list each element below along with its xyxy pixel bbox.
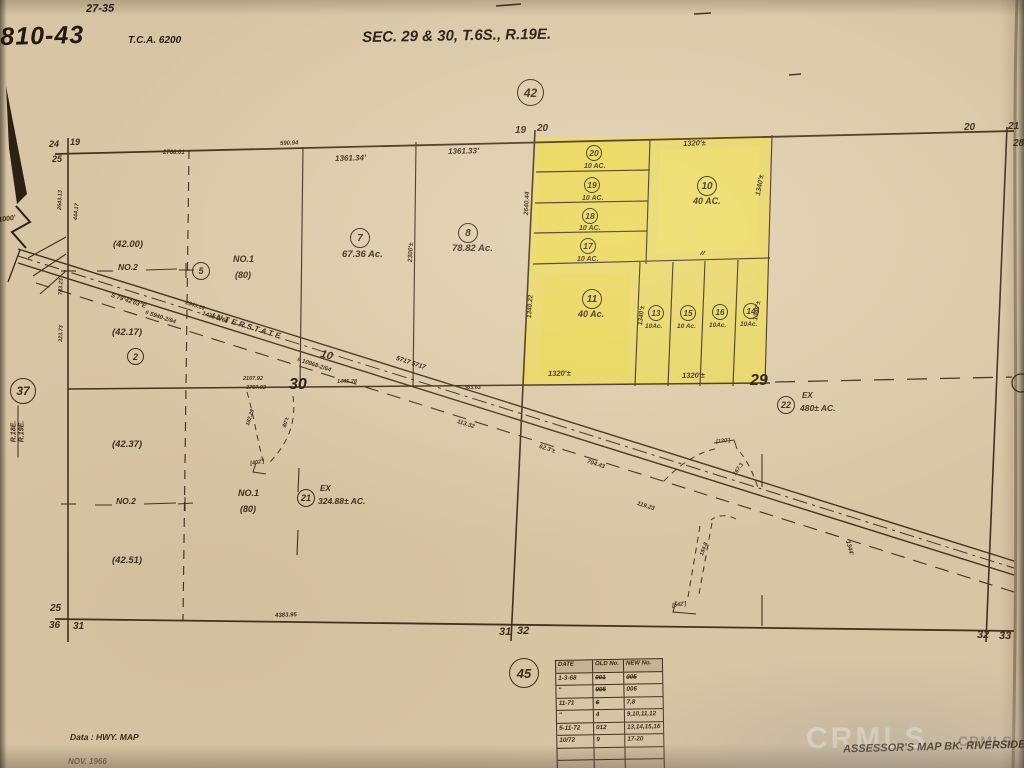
value-42-37: (42.37) — [112, 440, 142, 450]
range-r19e: R.19E. — [19, 406, 26, 458]
ramp-note-80: 80'± — [283, 417, 291, 429]
ramp-note-402: [402'] — [250, 460, 265, 468]
map-ref-circle-42: 42 — [517, 79, 544, 106]
parcel-20-circle: 20 — [586, 145, 602, 161]
corner-tr-21: 21 — [1008, 122, 1019, 133]
corner-tl-24: 24 — [49, 140, 59, 149]
dim-p14-right: 1340'± — [753, 301, 763, 321]
parcel-14-acreage: 10Ac. — [740, 322, 757, 329]
road-ref-1: # 5940-2/64 — [144, 310, 176, 326]
cell: 6 — [594, 697, 625, 709]
cell — [626, 759, 664, 768]
row-note-119: 119.23 — [636, 501, 655, 513]
cell: 11-71 — [557, 698, 594, 710]
cell: 9 — [594, 735, 625, 747]
map-labels: 27-35 810-43 T.C.A. 6200 SEC. 29 & 30, T… — [0, 0, 1024, 768]
ramp-note-154: 154.8 — [700, 542, 710, 557]
cell: 1-3-68 — [556, 673, 593, 685]
parcel-5-circle: 5 — [192, 262, 210, 280]
corner-tc-20: 20 — [537, 124, 548, 135]
col-date: DATE — [556, 660, 593, 672]
parcel-13-circle: 13 — [648, 305, 664, 321]
cell: 13,14,15,16 — [625, 722, 663, 734]
corner-bl-36: 36 — [49, 621, 60, 632]
route-no1-upper-sub: (80) — [235, 271, 251, 280]
route-no1-lower: NO.1 — [238, 489, 259, 498]
road-bearing: S 79°42'03"E — [110, 293, 147, 310]
cell: 10/72 — [557, 735, 594, 747]
cell: " — [556, 685, 593, 697]
value-42-17: (42.17) — [112, 328, 142, 338]
dim-3797: 3797.92 — [246, 386, 266, 392]
col-new-no: NEW No. — [624, 659, 662, 671]
parcel-13-acreage: 10Ac. — [645, 324, 662, 331]
dim-p11-bottom: 1320'± — [548, 370, 571, 378]
parcel-22-ex: EX — [802, 392, 813, 400]
parcel-20-acreage: 10 AC. — [584, 163, 606, 170]
corner-bc-32: 32 — [517, 626, 529, 638]
road-station-marks: 5717 5717 — [395, 356, 426, 372]
parcel-10-acreage: 40 AC. — [693, 197, 721, 206]
cell: 17-20 — [625, 734, 663, 746]
cell — [558, 760, 595, 768]
cell: 001 — [593, 672, 624, 684]
ramp-note-167: 167.3 — [733, 463, 746, 478]
route-no1-lower-sub: (80) — [240, 505, 256, 514]
revision-table: DATE OLD No. NEW No. 1-3-68 001 005 " 00… — [555, 658, 665, 768]
data-source-note: Data : HWY. MAP — [70, 733, 139, 742]
parcel-19-circle: 19 — [584, 177, 600, 193]
map-note-27-35: 27-35 — [86, 4, 114, 16]
corner-br-33: 33 — [999, 631, 1011, 643]
dim-2107: 2107.92 — [243, 377, 263, 383]
dim-323: 323.73 — [59, 325, 65, 342]
dim-743: 743.23 — [59, 278, 65, 295]
cell: " — [557, 710, 594, 722]
range-line-labels: R.18E. R.19E. — [11, 406, 26, 458]
corner-bl-25: 25 — [50, 604, 61, 615]
parcel-17-acreage: 10 AC. — [577, 256, 599, 263]
parcel-2-circle: 2 — [127, 348, 144, 365]
dim-sec7-top: 1361.34' — [335, 154, 366, 163]
parcel-17-circle: 17 — [580, 238, 596, 254]
ramp-note-182: 182.28 — [246, 409, 257, 427]
parcel-22-circle: 22 — [777, 396, 795, 414]
corner-tl-19: 19 — [70, 138, 80, 147]
parcel-21-acreage: 324.88± AC. — [318, 497, 365, 506]
cell: 9,10,11,12 — [625, 709, 663, 721]
parcel-21-circle: 21 — [297, 489, 315, 507]
book-page-number: 810-43 — [0, 22, 85, 50]
parcel-8-circle: 8 — [458, 223, 478, 243]
corner-tl-25: 25 — [52, 155, 62, 164]
corner-br-32: 32 — [977, 630, 989, 642]
revision-row — [558, 759, 664, 768]
ramp-note-120: [120'] — [716, 439, 731, 446]
route-no1-upper: NO.1 — [233, 255, 254, 264]
cell: 5-11-72 — [557, 723, 594, 735]
parcel-11-acreage: 40 Ac. — [578, 310, 604, 319]
dim-p10-right: 1340'± — [755, 174, 766, 196]
section-number-30: 30 — [289, 377, 307, 394]
cell: 006 — [624, 684, 662, 696]
parcel-10-circle: 10 — [697, 176, 717, 196]
range-r18e: R.18E. — [11, 406, 19, 458]
row-note-113: 113.32 — [456, 419, 475, 431]
dim-2643-left: 2643.13 — [58, 190, 64, 210]
parcel-22-acreage: 480± AC. — [800, 404, 836, 413]
corner-tr-28: 28 — [1013, 139, 1024, 150]
parcel-16-circle: 16 — [712, 304, 728, 320]
parcel-16-acreage: 10Ac. — [709, 323, 726, 330]
dim-1445: 1445.28 — [337, 380, 357, 386]
dim-4383: 4383.95 — [275, 612, 297, 619]
tca-number: T.C.A. 6200 — [128, 36, 181, 47]
parcel-11-circle: 11 — [582, 289, 602, 309]
map-date-note: NOV. 1966 — [68, 758, 107, 766]
ramp-note-542: [542'] — [672, 602, 687, 610]
cell: 012 — [594, 722, 625, 734]
parcel-21-ex: EX — [320, 485, 331, 493]
cell — [594, 747, 625, 759]
col-old-no: OLD No. — [593, 660, 624, 672]
parcel-15-acreage: 10 Ac. — [677, 324, 696, 331]
dim-2640: 2640.44 — [524, 192, 532, 216]
corner-tr-20: 20 — [964, 123, 975, 134]
cell — [625, 747, 663, 759]
parcel-18-acreage: 10 AC. — [579, 225, 601, 232]
row-note-1344: 1344' — [844, 540, 854, 556]
parcel-7-acreage: 67.36 Ac. — [342, 250, 383, 260]
row-note-704: 704.43 — [586, 459, 605, 471]
scale-label: 1000' — [0, 215, 16, 225]
assessor-map-photo: 27-35 810-43 T.C.A. 6200 SEC. 29 & 30, T… — [0, 0, 1024, 768]
route-no2-lower: NO.2 — [116, 497, 136, 506]
cell: 005 — [624, 672, 662, 684]
map-ref-circle-45: 45 — [509, 658, 539, 688]
route-no2-upper: NO.2 — [118, 263, 138, 272]
dim-2300: 2300'± — [408, 242, 416, 262]
value-42-00: (42.00) — [113, 240, 143, 250]
parcel-18-circle: 18 — [582, 208, 598, 224]
section-title: SEC. 29 & 30, T.6S., R.19E. — [362, 27, 551, 46]
parcel-7-circle: 7 — [350, 228, 370, 248]
dim-590: 590.94 — [280, 140, 299, 147]
parcel-19-acreage: 10 AC. — [582, 195, 604, 202]
value-42-51: (42.51) — [112, 556, 142, 566]
dim-p10-top: 1320'± — [683, 139, 706, 148]
dim-444: 444.17 — [74, 203, 81, 220]
cell — [557, 748, 594, 760]
dim-2768: 2768.01 — [163, 150, 185, 156]
dim-1340-22: 1340.22 — [527, 295, 535, 319]
corner-bc-31: 31 — [499, 627, 511, 639]
cell: 005 — [593, 685, 624, 697]
map-ref-circle-37: 37 — [10, 378, 36, 404]
row-note-62: 62.3'± — [538, 444, 556, 455]
ditto-mark: 〃 — [698, 250, 706, 258]
cell: 7,8 — [625, 697, 663, 709]
dim-p16-bottom: 1320'± — [682, 372, 705, 380]
route-10-label: 10 — [319, 349, 334, 363]
corner-tc-19: 19 — [515, 126, 526, 137]
corner-bl-31: 31 — [73, 622, 84, 633]
section-number-29: 29 — [750, 373, 768, 390]
cell — [595, 760, 626, 768]
dim-363: 363.63 — [464, 386, 481, 392]
parcel-15-circle: 15 — [680, 305, 696, 321]
parcel-8-acreage: 78.82 Ac. — [452, 244, 493, 254]
cell: 4 — [594, 710, 625, 722]
dim-sec8-top: 1361.33' — [448, 147, 479, 156]
